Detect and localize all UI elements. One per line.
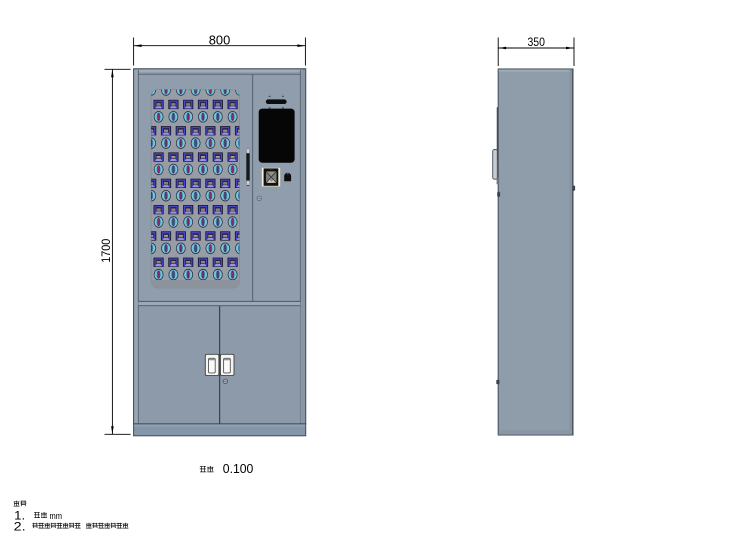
svg-text:mm: mm [50,511,63,522]
svg-text:350: 350 [527,35,545,49]
svg-text:1.: 1. [14,510,25,522]
svg-text:1700: 1700 [99,238,113,262]
svg-text:800: 800 [209,32,231,47]
svg-text:0.100: 0.100 [223,462,254,476]
svg-text:2.: 2. [14,522,26,534]
